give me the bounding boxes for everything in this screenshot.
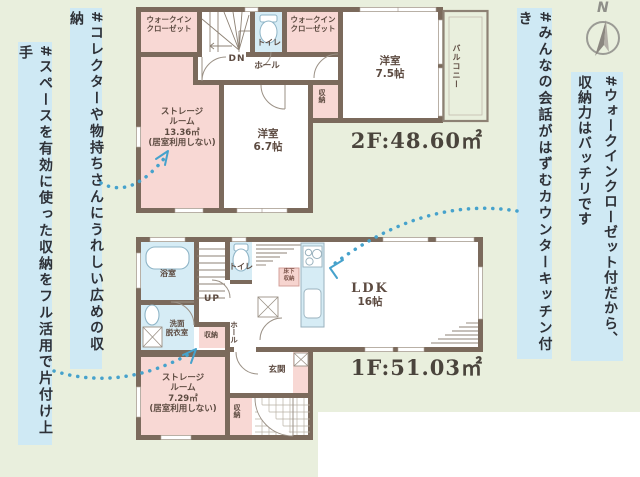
annotation-left-inner-text: #コレクターや物持ちさんにうれしい広めの収納: [66, 11, 106, 369]
room-label-toilet-1f: トイレ: [226, 262, 256, 272]
room-label-storage-1f: ストレージ ルーム 7.29㎡ (居室利用しない): [141, 373, 225, 414]
compass-north-label: N: [597, 0, 609, 16]
annotation-right-inner-text: #みんなの会話がはずむカウンターキッチン付き: [515, 11, 555, 359]
floor1-area-label: 1F:51.03㎡: [320, 352, 483, 382]
room-label-closet-2f: 収納: [318, 89, 325, 103]
room-label-hall-2f: ホール: [249, 61, 285, 71]
annotation-right-outer: #ウォークインクローゼット付だから、 収納力はバッチリです: [571, 72, 623, 361]
floor1-plan: [136, 235, 490, 447]
room-label-floor-storage: 床下 収納: [279, 269, 299, 283]
compass: N: [573, 0, 637, 72]
room-label-bedroom-75: 洋室 7.5帖: [360, 55, 420, 81]
room-label-bedroom-67: 洋室 6.7帖: [240, 128, 296, 154]
room-label-hall-1f: ホール: [230, 321, 238, 344]
room-label-stairs-up: UP: [198, 294, 226, 305]
room-label-washroom: 洗面 脱衣室: [156, 319, 198, 337]
room-label-entrance: 玄関: [260, 365, 294, 375]
room-label-balcony: バルコニー: [452, 44, 460, 89]
room-label-storage-2f: ストレージ ルーム 13.36㎡ (居室利用しない): [141, 107, 223, 148]
room-label-wic-left-2f: ウォークイン クローゼット: [140, 15, 198, 33]
room-label-wic-right-2f: ウォークイン クローゼット: [285, 15, 341, 33]
floor2-area-label: 2F:48.60㎡: [320, 125, 483, 155]
annotation-right-outer-text: #ウォークインクローゼット付だから、 収納力はバッチリです: [571, 75, 623, 361]
annotation-left-outer-text: #スペースを有効に使った収納をフル活用で片付け上手: [15, 45, 55, 445]
annotation-right-inner: #みんなの会話がはずむカウンターキッチン付き: [517, 8, 552, 359]
annotation-left-outer: #スペースを有効に使った収納をフル活用で片付け上手: [18, 42, 52, 445]
room-label-bath: 浴室: [150, 269, 186, 279]
room-label-ldk: LDK: [342, 281, 398, 297]
room-label-closet-b: 収納: [233, 404, 240, 418]
floor-plan-flyer: #スペースを有効に使った収納をフル活用で片付け上手 #コレクターや物持ちさんにう…: [0, 0, 640, 477]
room-label-toilet-2f: トイレ: [254, 38, 284, 48]
room-label-closet-a: 収納: [197, 331, 225, 340]
annotation-left-inner: #コレクターや物持ちさんにうれしい広めの収納: [70, 8, 102, 369]
room-label-stairs-dn: DN: [224, 54, 250, 65]
room-label-ldk-size: 16帖: [342, 296, 398, 309]
